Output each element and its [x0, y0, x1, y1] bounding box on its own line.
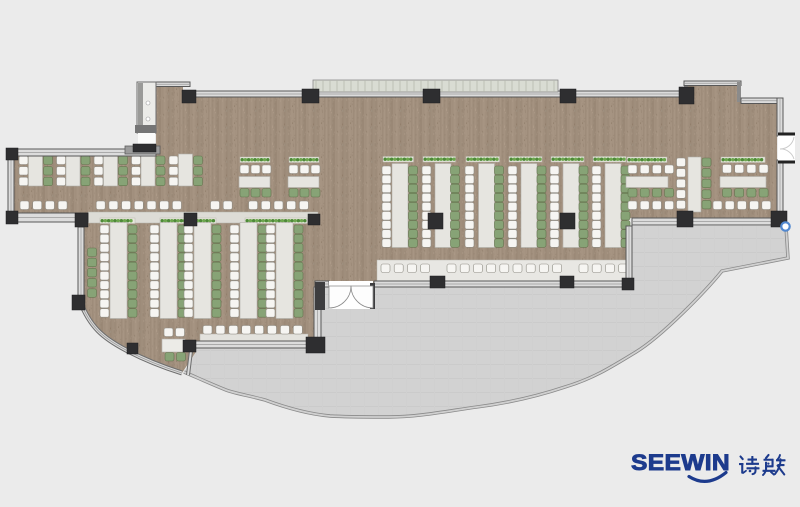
svg-text:SEEWIN: SEEWIN: [631, 450, 730, 475]
